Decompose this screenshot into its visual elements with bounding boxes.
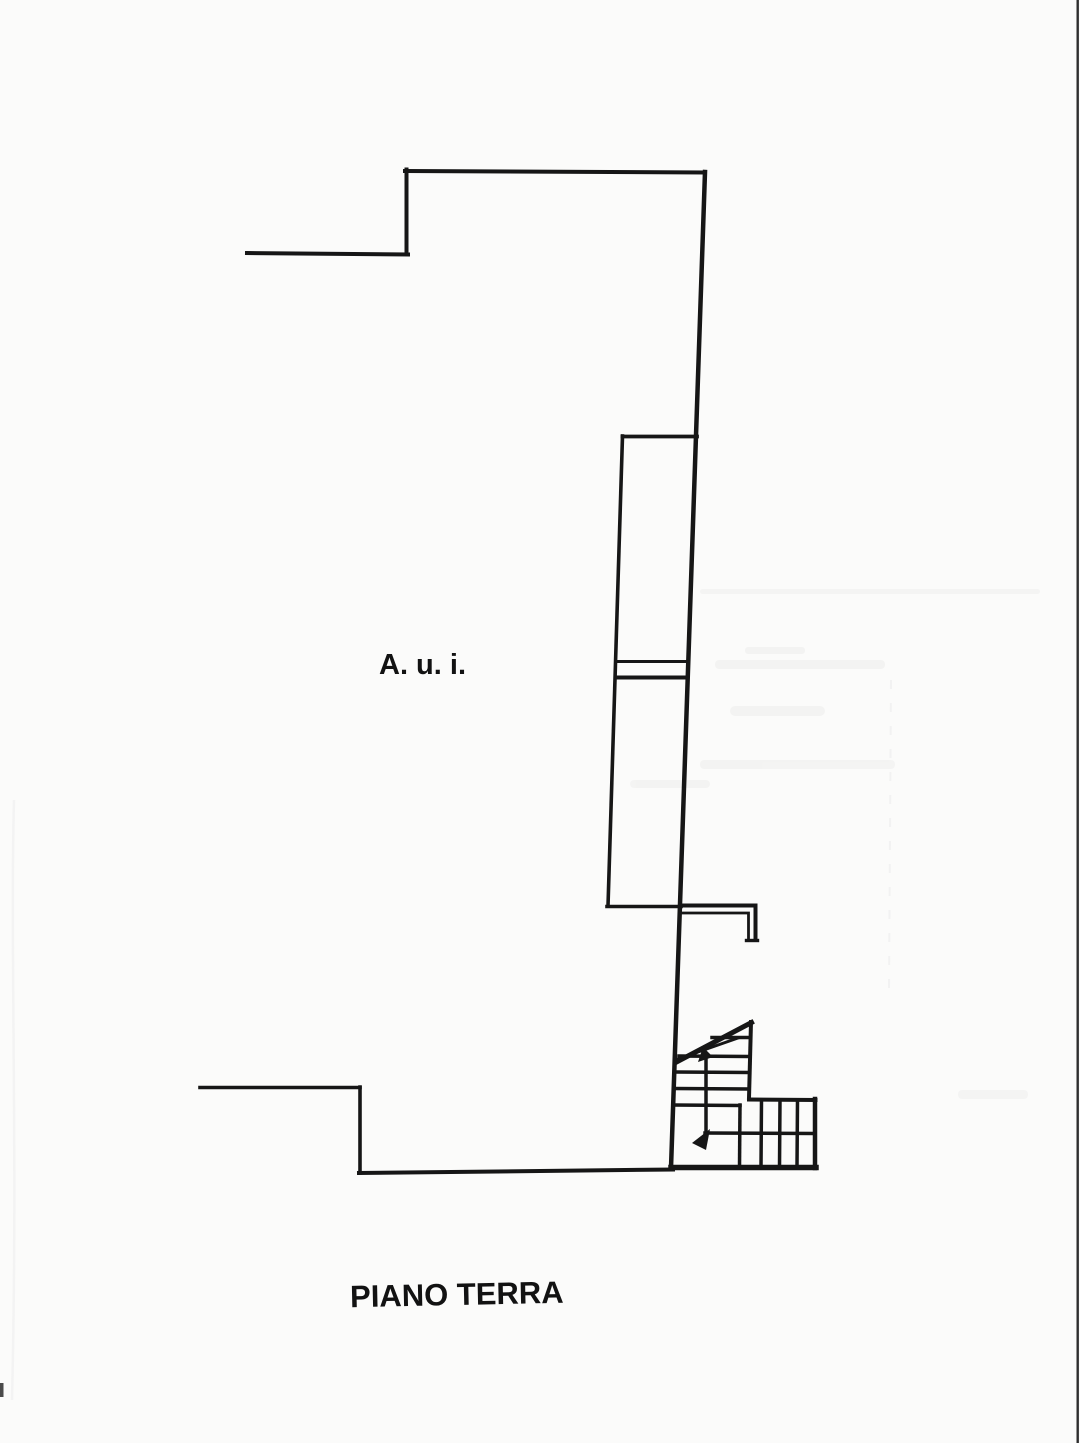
svg-text:A. u. i.: A. u. i. (379, 649, 466, 681)
svg-text:PIANO TERRA: PIANO TERRA (350, 1275, 564, 1314)
